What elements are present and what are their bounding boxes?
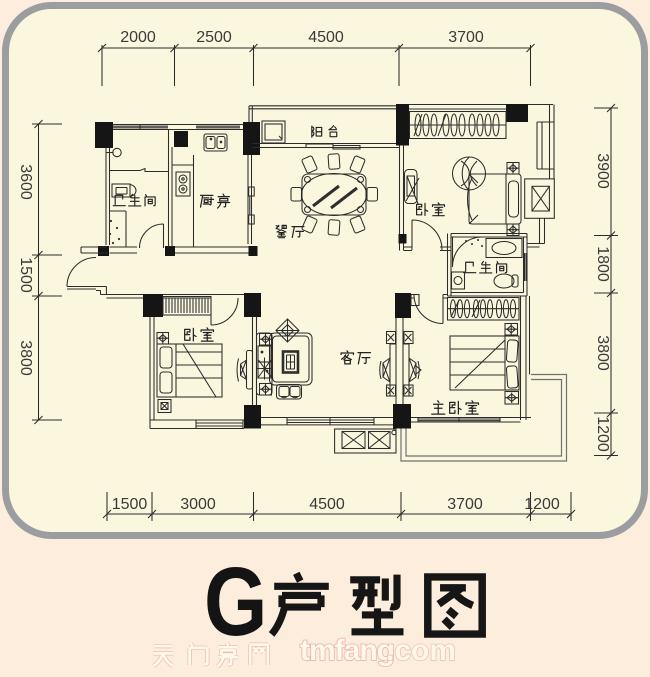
svg-text:3800: 3800 — [17, 340, 34, 376]
svg-text:G: G — [204, 547, 267, 655]
svg-text:1200: 1200 — [594, 416, 611, 452]
svg-text:1800: 1800 — [594, 246, 611, 282]
svg-text:2000: 2000 — [120, 29, 156, 46]
svg-text:3600: 3600 — [17, 164, 34, 200]
svg-text:.com: .com — [386, 634, 456, 667]
svg-text:3700: 3700 — [448, 29, 484, 46]
svg-text:tmfang: tmfang — [300, 634, 394, 667]
svg-text:4500: 4500 — [308, 29, 344, 46]
svg-text:1200: 1200 — [524, 496, 560, 513]
svg-text:2500: 2500 — [196, 29, 232, 46]
svg-text:3700: 3700 — [447, 496, 483, 513]
svg-text:3800: 3800 — [594, 335, 611, 371]
svg-text:4500: 4500 — [309, 496, 345, 513]
svg-text:1500: 1500 — [112, 496, 148, 513]
svg-text:3000: 3000 — [180, 496, 216, 513]
svg-text:3900: 3900 — [594, 153, 611, 189]
svg-text:1500: 1500 — [17, 257, 34, 293]
